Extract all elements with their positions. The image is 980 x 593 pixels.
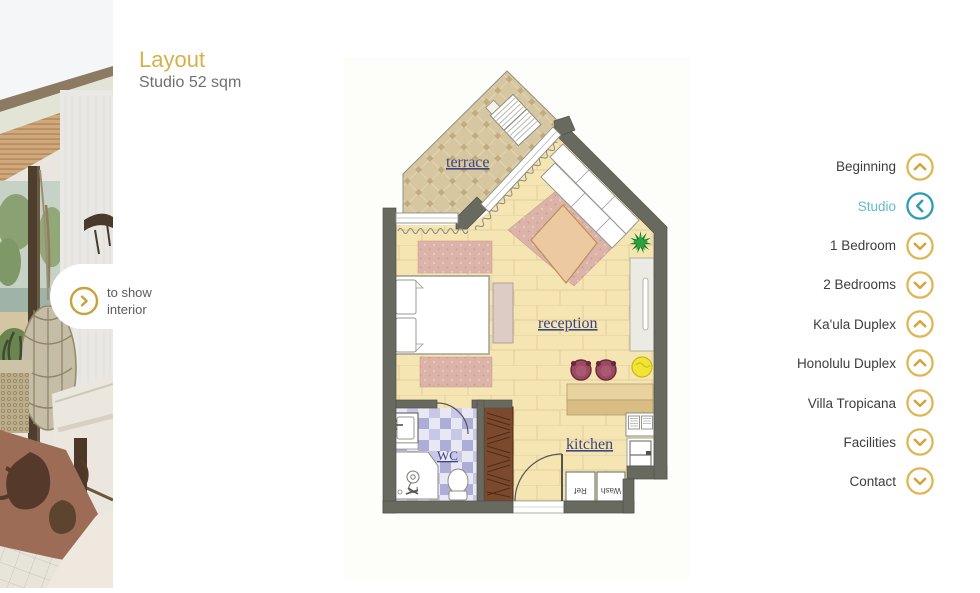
svg-text:kitchen: kitchen [566, 436, 613, 453]
svg-text:Ref: Ref [574, 486, 587, 495]
svg-text:reception: reception [538, 315, 598, 332]
svg-text:Wash: Wash [601, 486, 621, 495]
svg-text:terrace: terrace [446, 154, 490, 171]
svg-text:WC: WC [437, 448, 458, 463]
